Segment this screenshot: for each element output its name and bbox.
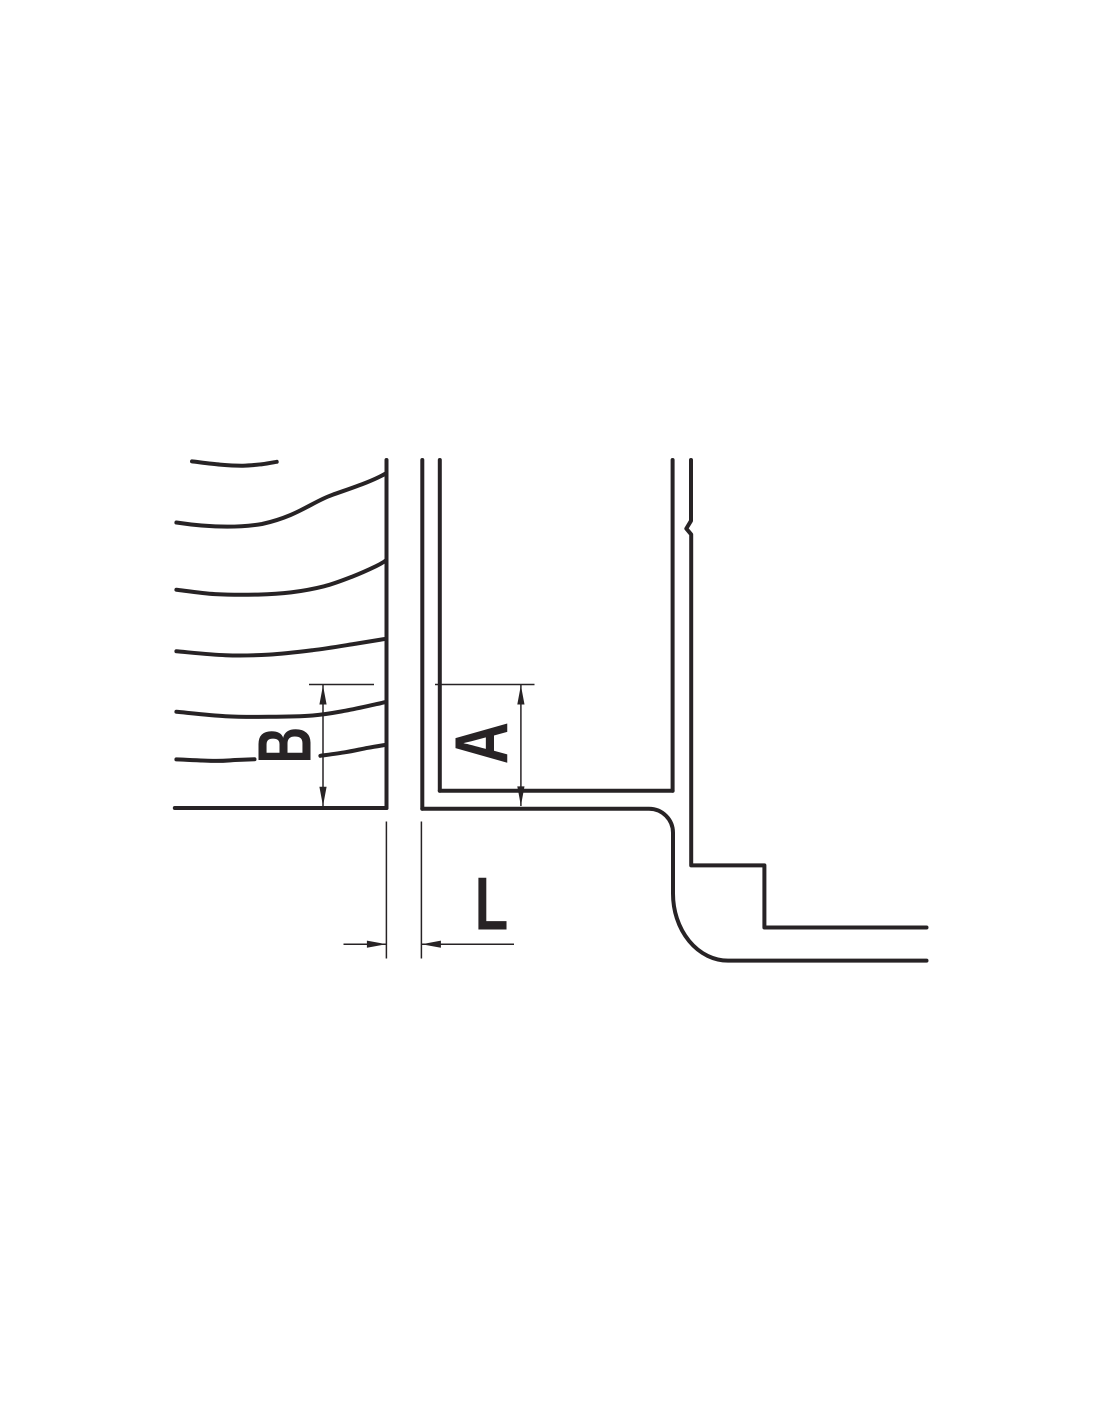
svg-text:L: L bbox=[475, 862, 508, 945]
svg-text:A: A bbox=[440, 722, 524, 764]
svg-text:B: B bbox=[242, 727, 327, 763]
